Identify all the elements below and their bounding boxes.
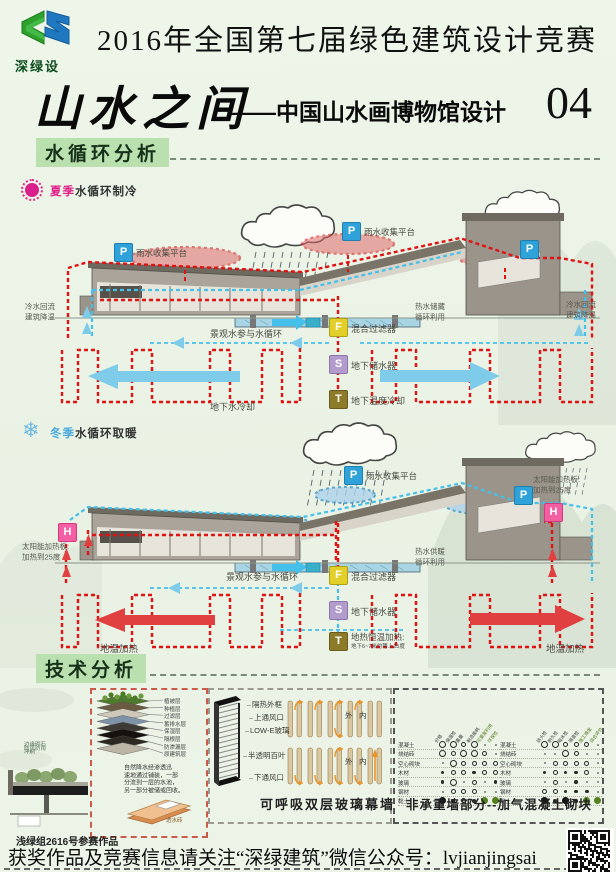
matrix-dot (584, 770, 589, 775)
matrix-dot (586, 781, 588, 783)
summer-p-badge-3: P (520, 240, 539, 259)
matrix-row-rule (500, 786, 602, 787)
matrix-dot (563, 742, 568, 747)
poster: 深绿设 2016年全国第七届绿色建筑设计竞赛 山水之间 ——中国山水画博物馆设计… (0, 0, 616, 872)
winter-p-badge-2: P (514, 486, 533, 505)
matrix-dot (597, 744, 599, 746)
green-roof-labels: 植被层种植层过滤层蓄排水层保湿层隔根层防渗漏层原建筑层 (164, 697, 204, 761)
matrix-dot (439, 741, 446, 748)
matrix-dot (482, 751, 487, 756)
matrix-dot (451, 770, 456, 775)
airflow-cell (326, 698, 344, 745)
glass-label-lowe: LOW-E玻璃 (245, 725, 289, 736)
matrix-dot (471, 741, 478, 748)
winter-season-rest: 水循环取暖 (75, 428, 138, 440)
matrix-dot (554, 753, 556, 755)
matrix-dot (450, 779, 457, 786)
qr-code (566, 828, 614, 872)
matrix-dot (553, 761, 558, 766)
matrix-dot (584, 742, 589, 747)
edge-note: 边缘砌石防风防雨冲刷 (24, 740, 54, 755)
winter-season-label: 冬季水循环取暖 (50, 425, 138, 441)
winter-solar-right: 太阳能加热板:加热到25度 (533, 474, 580, 495)
winter-t-badge: T (329, 632, 348, 651)
matrix-dot (484, 781, 486, 783)
permeable-brick-label: 透水砖 (166, 816, 183, 824)
summer-temp-cool-label: 地下温度冷却 (351, 394, 405, 407)
logo-icon (14, 6, 76, 56)
airflow-cell (366, 698, 384, 745)
matrix-dot (564, 771, 568, 775)
matrix-dot (597, 753, 599, 755)
material-matrix-left: 价格保温性重量制造能耗可重复利用环保性混凝土烧结砖空心砌块木材玻璃钢材黏土 (398, 697, 502, 809)
subtitle: ——中国山水画博物馆设计 (230, 93, 506, 127)
winter-filter-label: 混合过滤器 (351, 570, 396, 583)
matrix-row-rule (398, 786, 500, 787)
matrix-dot (461, 761, 466, 766)
summer-storage-label: 地下储水器 (351, 359, 396, 372)
airflow-cell (306, 745, 324, 792)
airflow-cell (346, 698, 364, 745)
matrix-dot (472, 780, 477, 785)
summer-cold-return-right: 冷水回流建筑降温 (566, 299, 596, 320)
matrix-dot (450, 760, 457, 767)
winter-season-word: 冬季 (50, 428, 75, 440)
roof-layer-label: 原建筑层 (164, 750, 186, 758)
matrix-dot (460, 750, 467, 757)
airflow-cell (346, 745, 364, 792)
matrix-dot (552, 741, 559, 748)
glass-label-frame: 隔热外框 (247, 699, 282, 710)
matrix-dot (472, 771, 476, 775)
winter-diagram-main (0, 425, 616, 675)
winter-snow-icon: ❄ (22, 418, 40, 443)
matrix-dot (597, 791, 599, 793)
matrix-dot (493, 770, 498, 775)
matrix-dot (564, 790, 568, 794)
wechat-line: 获奖作品及竞赛信息请关注“深绿建筑”微信公众号：lvjianjingsai (8, 843, 537, 870)
matrix-dot (565, 781, 567, 783)
matrix-dot (495, 753, 497, 755)
summer-season-label: 夏季水循环制冷 (50, 183, 138, 199)
matrix-dot (541, 741, 548, 748)
matrix-dot (553, 770, 558, 775)
section-water-divider (160, 158, 600, 160)
matrix-dot (482, 761, 487, 766)
winter-h-badge-left: H (58, 523, 77, 542)
airflow-cell (326, 745, 344, 792)
main-title: 山水之间 (34, 70, 250, 139)
summer-filter-label: 混合过滤器 (351, 322, 396, 335)
matrix-dot (597, 781, 599, 783)
roof-layer-label: 隔根层 (164, 735, 181, 743)
matrix-row-rule (500, 777, 602, 778)
section-tech-title: 技术分析 (36, 654, 146, 683)
matrix-dot (574, 790, 578, 794)
summer-platform-label-1: 雨水收集平台 (136, 247, 187, 259)
matrix-dot (484, 791, 486, 793)
matrix-dot (450, 741, 457, 748)
entry-number: 04 (546, 76, 592, 129)
edge-stone-diagram (8, 758, 92, 828)
summer-season-rest: 水循环制冷 (75, 186, 138, 198)
matrix-dot (543, 771, 547, 775)
edge-note-line: 冲刷 (24, 748, 35, 756)
airflow-outside-label-2: 外 (345, 756, 353, 767)
matrix-dot (441, 780, 445, 784)
matrix-row-rule (398, 767, 500, 768)
wall-material-caption: 非承重墙部分--加气混凝土砌块 (406, 794, 592, 813)
matrix-dot (472, 761, 477, 766)
matrix-dot (495, 791, 497, 793)
summer-diagram (0, 180, 616, 430)
glass-label-louver: 半透明百叶 (243, 750, 286, 761)
roof-text-line: 另一部分被储或回收。 (124, 786, 184, 795)
louver-wall-drawing (212, 694, 246, 794)
green-roof-text: 自然降水经渗透迅速地通过铺装，一部分流到一层的水池，另一部分被储或回收。 (124, 763, 202, 797)
matrix-dot (461, 742, 466, 747)
summer-hot-storage-label: 热水储藏循环利用 (415, 301, 445, 322)
material-matrix-right: 防火性耐久性吸水性隔音性施工难度综合评价混凝土烧结砖空心砌块木材玻璃钢材黏土 (500, 697, 600, 809)
summer-season-word: 夏季 (50, 186, 75, 198)
summer-p-badge-2: P (342, 222, 361, 241)
matrix-dot (451, 751, 456, 756)
roof-layer-label: 过滤层 (164, 712, 181, 720)
matrix-dot (442, 762, 444, 764)
airflow-inside-label-1: 内 (359, 710, 367, 721)
matrix-dot (484, 744, 486, 746)
winter-geo-heat-sub: 地下6~7米约等上15度 (351, 642, 405, 650)
matrix-dot (597, 762, 599, 764)
matrix-row-rule (398, 758, 500, 759)
matrix-dot (544, 781, 546, 783)
airflow-cell (286, 745, 304, 792)
matrix-dot (441, 771, 445, 775)
winter-landscape-label: 景观水参与水循环 (226, 570, 298, 583)
summer-landscape-label: 景观水参与水循环 (210, 327, 282, 340)
matrix-dot (574, 780, 578, 784)
airflow-outside-label-1: 外 (345, 710, 353, 721)
matrix-dot (544, 762, 546, 764)
glass-label-top-vent: 上通风口 (249, 712, 284, 723)
matrix-dot (574, 761, 579, 766)
matrix-dot (574, 771, 578, 775)
building-section-winter (55, 458, 600, 573)
matrix-dot (493, 761, 498, 766)
matrix-dot (439, 750, 446, 757)
winter-f-badge: F (329, 566, 348, 585)
matrix-dot (586, 753, 588, 755)
matrix-dot (553, 780, 558, 785)
airflow-inside-label-2: 内 (359, 756, 367, 767)
airflow-cell (366, 745, 384, 792)
winter-hot-supply-label: 热水供暖循环利用 (415, 546, 445, 567)
matrix-dot (482, 770, 487, 775)
competition-title: 2016年全国第七届绿色建筑设计竞赛 (97, 17, 597, 59)
winter-ground-heat-left: 地温加热 (100, 641, 138, 655)
glass-label-bottom-vent: 下通风口 (249, 772, 284, 783)
airflow-cell (306, 698, 324, 745)
winter-storage-label: 地下储水器 (351, 605, 396, 618)
matrix-dot (463, 781, 465, 783)
matrix-dot (594, 797, 601, 804)
winter-p-badge-1: P (344, 466, 363, 485)
roof-layer-label: 植被层 (164, 697, 181, 705)
matrix-dot (584, 761, 589, 766)
matrix-dot (494, 780, 498, 784)
airflow-cell (286, 698, 304, 745)
winter-s-badge: S (329, 601, 348, 620)
summer-ground-cool-label: 地下水冷却 (210, 400, 255, 413)
matrix-dot (597, 772, 599, 774)
summer-s-badge: S (329, 355, 348, 374)
summer-f-badge: F (329, 318, 348, 337)
winter-platform-label: 雨水收集平台 (366, 470, 417, 482)
matrix-dot (574, 751, 579, 756)
matrix-row-rule (500, 767, 602, 768)
section-tech-divider (150, 674, 600, 676)
glass-wall-caption: 可呼吸双层玻璃幕墙 (260, 794, 395, 813)
winter-solar-left: 太阳能加热板:加热到25度 (22, 541, 69, 562)
summer-platform-label-2: 雨水收集平台 (364, 226, 415, 238)
matrix-dot (563, 761, 568, 766)
winter-ground-heat-right: 地温加热 (546, 641, 584, 655)
matrix-dot (574, 742, 579, 747)
summer-p-badge-1: P (114, 243, 133, 262)
matrix-dot (562, 750, 569, 757)
matrix-row-rule (500, 758, 602, 759)
summer-season-icon (21, 179, 43, 201)
summer-cold-return-left: 冷水回流建筑降温 (25, 301, 55, 322)
matrix-dot (471, 750, 478, 757)
winter-h-badge-right: H (544, 503, 563, 522)
matrix-row-rule (398, 777, 500, 778)
matrix-dot (442, 791, 444, 793)
matrix-dot (585, 790, 589, 794)
matrix-dot (495, 744, 497, 746)
matrix-dot (544, 753, 546, 755)
matrix-dot (461, 770, 466, 775)
section-water-title: 水循环分析 (36, 138, 169, 167)
summer-t-badge: T (329, 390, 348, 409)
